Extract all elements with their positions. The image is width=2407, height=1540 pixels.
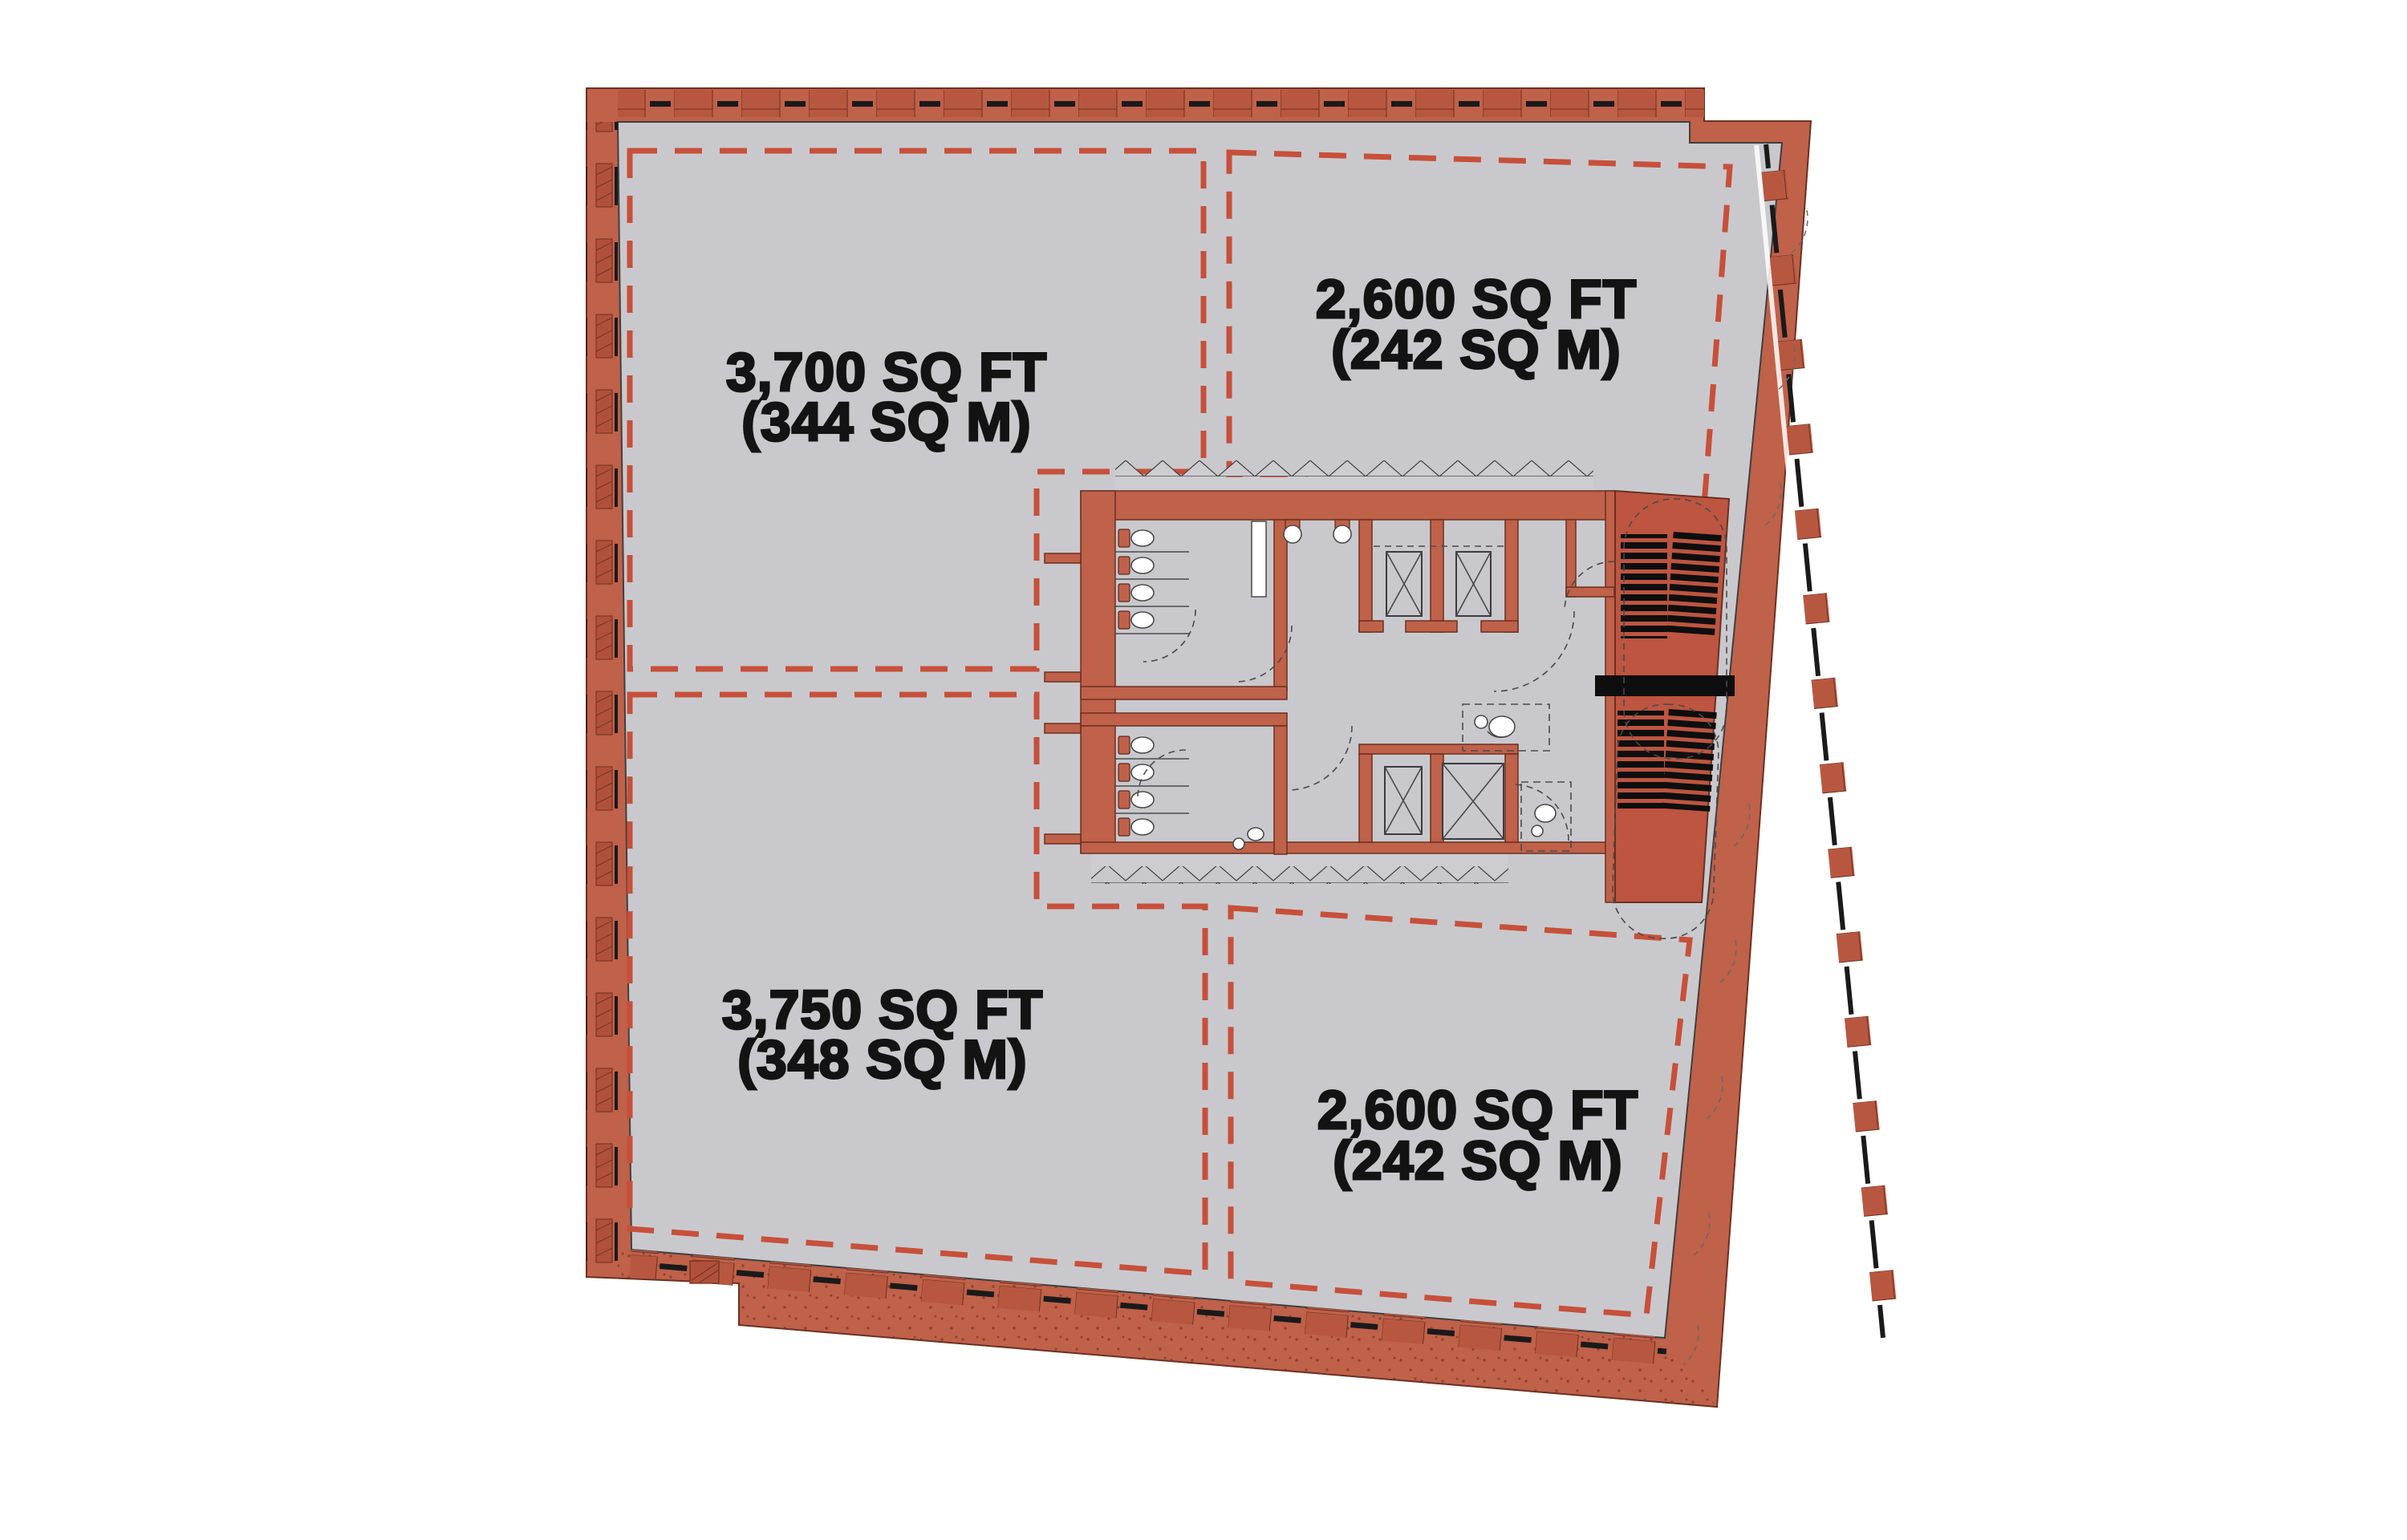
vestibule-wall bbox=[1566, 520, 1576, 597]
area-label-sqm: (242 SQ M) bbox=[1331, 319, 1621, 380]
window-zigzag-bottom bbox=[1091, 866, 1508, 884]
elevator-icon bbox=[1443, 764, 1504, 839]
right-facade-windows bbox=[1754, 143, 1900, 1339]
corner-hatch-block bbox=[690, 1261, 719, 1283]
stair-treads-icon bbox=[1621, 534, 1667, 638]
open-door-leaf bbox=[1252, 521, 1266, 597]
left-facade-windows bbox=[587, 122, 618, 1269]
elevator-icon bbox=[1456, 552, 1491, 616]
elevator-icon bbox=[1386, 552, 1422, 616]
core-top-wall bbox=[1081, 491, 1615, 520]
area-label-sqm: (344 SQ M) bbox=[741, 391, 1031, 452]
wc-top-east-wall bbox=[1274, 520, 1287, 690]
top-facade-windows bbox=[618, 90, 1704, 117]
floor-plan-canvas: 3,700 SQ FT (344 SQ M) 2,600 SQ FT (242 … bbox=[0, 0, 2407, 1540]
core-bottom-wall bbox=[1081, 842, 1615, 853]
stair-treads-icon bbox=[1666, 529, 1722, 638]
wc-top-south-wall bbox=[1081, 687, 1287, 699]
vestibule-wall bbox=[1566, 587, 1614, 597]
stair-treads-icon bbox=[1618, 711, 1664, 808]
area-label-sqm: (348 SQ M) bbox=[737, 1029, 1027, 1090]
wc-bot-east-wall bbox=[1274, 726, 1287, 854]
core-bottom-sill bbox=[1091, 853, 1508, 866]
floor-plan-page: 3,700 SQ FT (344 SQ M) 2,600 SQ FT (242 … bbox=[0, 0, 2407, 1540]
west-stub-4 bbox=[1045, 834, 1081, 844]
area-label-sqm: (242 SQ M) bbox=[1333, 1130, 1622, 1191]
west-stub-1 bbox=[1045, 553, 1081, 563]
elevator-icon bbox=[1385, 767, 1422, 834]
core-top-sill bbox=[1115, 477, 1593, 492]
window-zigzag-top bbox=[1115, 460, 1593, 478]
west-stub-2 bbox=[1045, 672, 1081, 682]
wc-bot-north-wall bbox=[1081, 713, 1287, 726]
stair-separator-bar bbox=[1595, 675, 1735, 696]
lobby-stair-wall bbox=[1605, 491, 1615, 902]
core-west-wall bbox=[1081, 491, 1115, 853]
west-stub-3 bbox=[1045, 723, 1081, 733]
